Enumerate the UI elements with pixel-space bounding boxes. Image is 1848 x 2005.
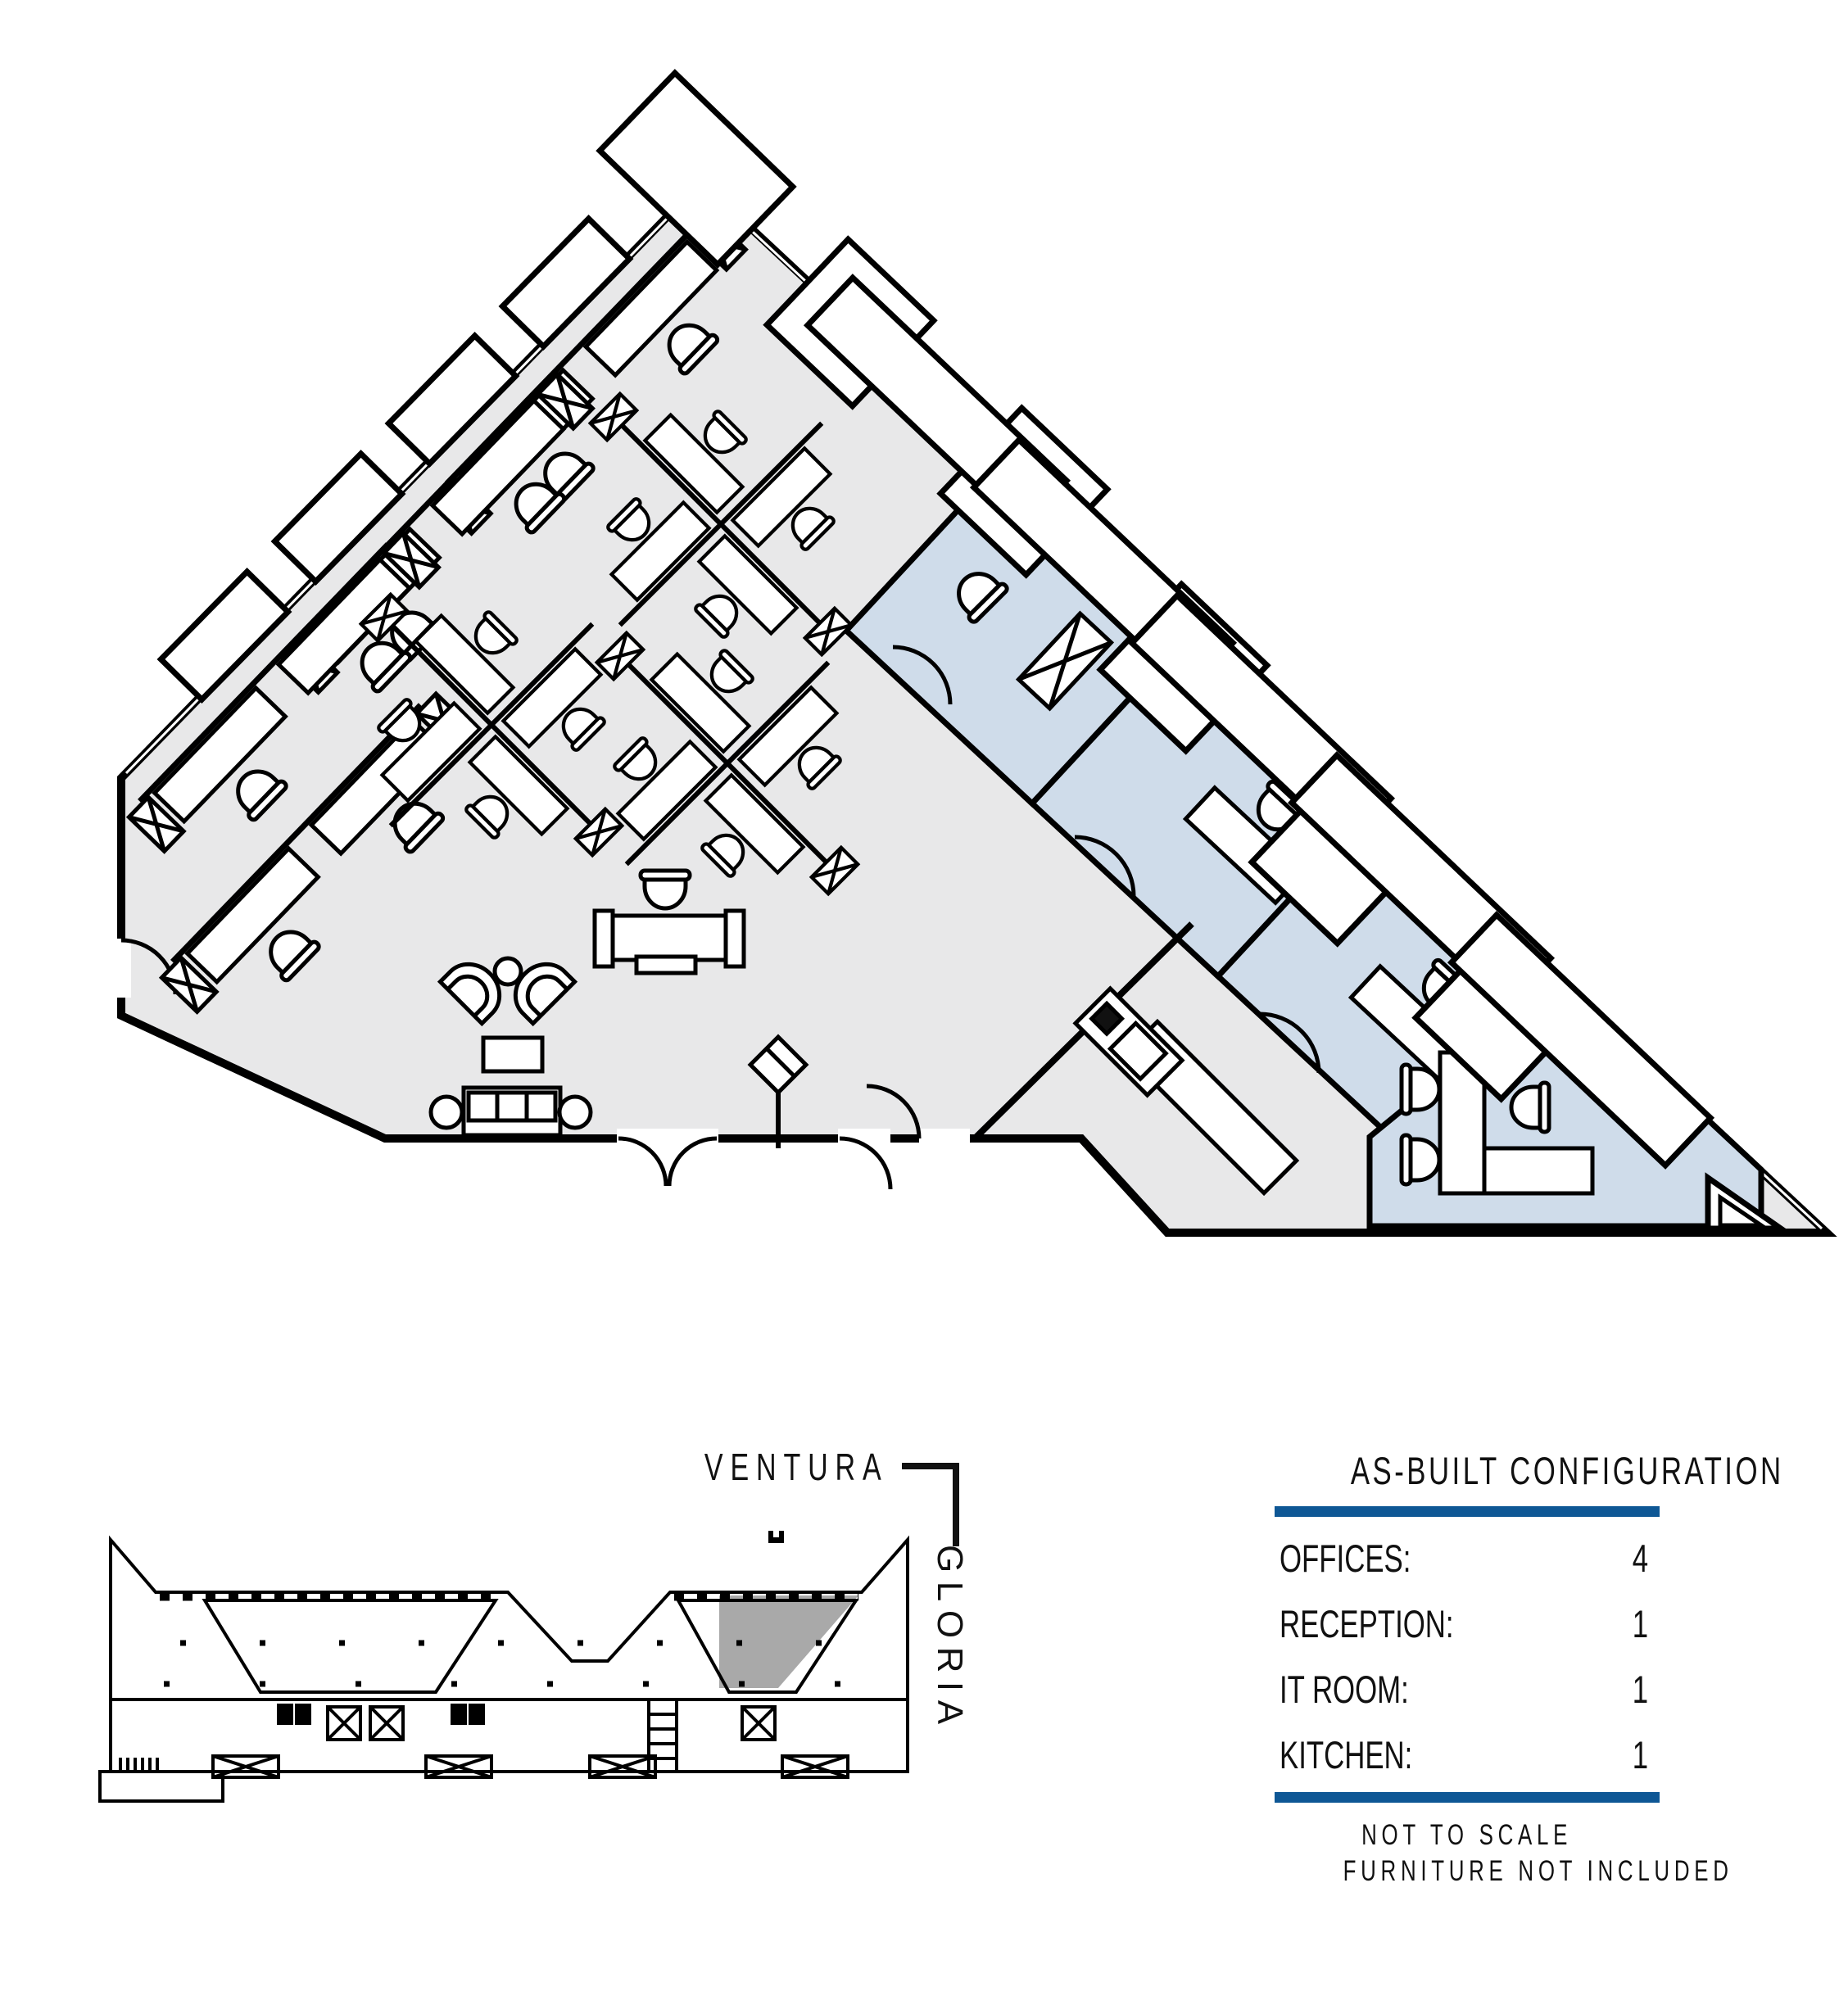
legend-row-it-room: IT ROOM: 1 — [1275, 1656, 1660, 1722]
crown-mark — [768, 1531, 784, 1543]
note-line: FURNITURE NOT INCLUDED — [1275, 1853, 1660, 1890]
core-box — [470, 1705, 483, 1723]
legend-row-value: 4 — [1633, 1536, 1648, 1581]
main-floor-plan — [0, 0, 1848, 1343]
round-table — [431, 1097, 462, 1128]
legend-row-value: 1 — [1633, 1667, 1648, 1712]
street-label-ventura: VENTURA — [500, 1445, 889, 1489]
legend-rule-top — [1275, 1506, 1660, 1517]
legend-row-reception: RECEPTION: 1 — [1275, 1591, 1660, 1656]
street-label-text: VENTURA — [704, 1445, 889, 1489]
legend-row-kitchen: KITCHEN: 1 — [1275, 1722, 1660, 1787]
key-plan-court-left — [205, 1600, 496, 1692]
stair-x — [782, 1756, 848, 1777]
stair-x — [590, 1756, 655, 1777]
core-box — [297, 1705, 310, 1723]
side-table — [495, 958, 521, 984]
legend-row-label: RECEPTION: — [1280, 1601, 1454, 1646]
annex-block — [100, 1772, 223, 1801]
core-box — [452, 1705, 465, 1723]
elevator-x — [742, 1707, 775, 1740]
legend-row-label: IT ROOM: — [1280, 1667, 1409, 1712]
legend-rule-bottom — [1275, 1792, 1660, 1803]
elevator-x — [370, 1707, 403, 1740]
legend-row-label: OFFICES: — [1280, 1536, 1411, 1581]
core-box — [279, 1705, 292, 1723]
legend-title-text: AS-BUILT CONFIGURATION — [1351, 1448, 1784, 1493]
elevator-x — [328, 1707, 360, 1740]
round-table — [559, 1097, 591, 1128]
legend-notes: NOT TO SCALE FURNITURE NOT INCLUDED — [1275, 1817, 1660, 1890]
center-shaft — [649, 1699, 677, 1772]
floorplan-sheet: { "sheet": { "type": "office floor plan … — [0, 0, 1848, 2005]
sofa — [464, 1088, 560, 1135]
legend-title: AS-BUILT CONFIGURATION — [1275, 1448, 1660, 1493]
legend-row-value: 1 — [1633, 1601, 1648, 1646]
legend-row-value: 1 — [1633, 1732, 1648, 1777]
stair-x — [426, 1756, 491, 1777]
key-plan — [82, 1520, 934, 1946]
street-bracket-horizontal — [902, 1463, 959, 1469]
note-line: NOT TO SCALE — [1275, 1817, 1660, 1853]
center-shaft-hatch — [649, 1714, 677, 1758]
coffee-table — [483, 1038, 542, 1071]
street-bracket-vertical — [953, 1463, 959, 1546]
legend-rows: OFFICES: 4 RECEPTION: 1 IT ROOM: 1 KITCH… — [1275, 1525, 1660, 1787]
as-built-legend: AS-BUILT CONFIGURATION OFFICES: 4 RECEPT… — [1275, 1448, 1660, 1890]
legend-row-label: KITCHEN: — [1280, 1732, 1412, 1777]
legend-row-offices: OFFICES: 4 — [1275, 1525, 1660, 1591]
street-label-gloria: GLORIA — [929, 1545, 970, 1758]
